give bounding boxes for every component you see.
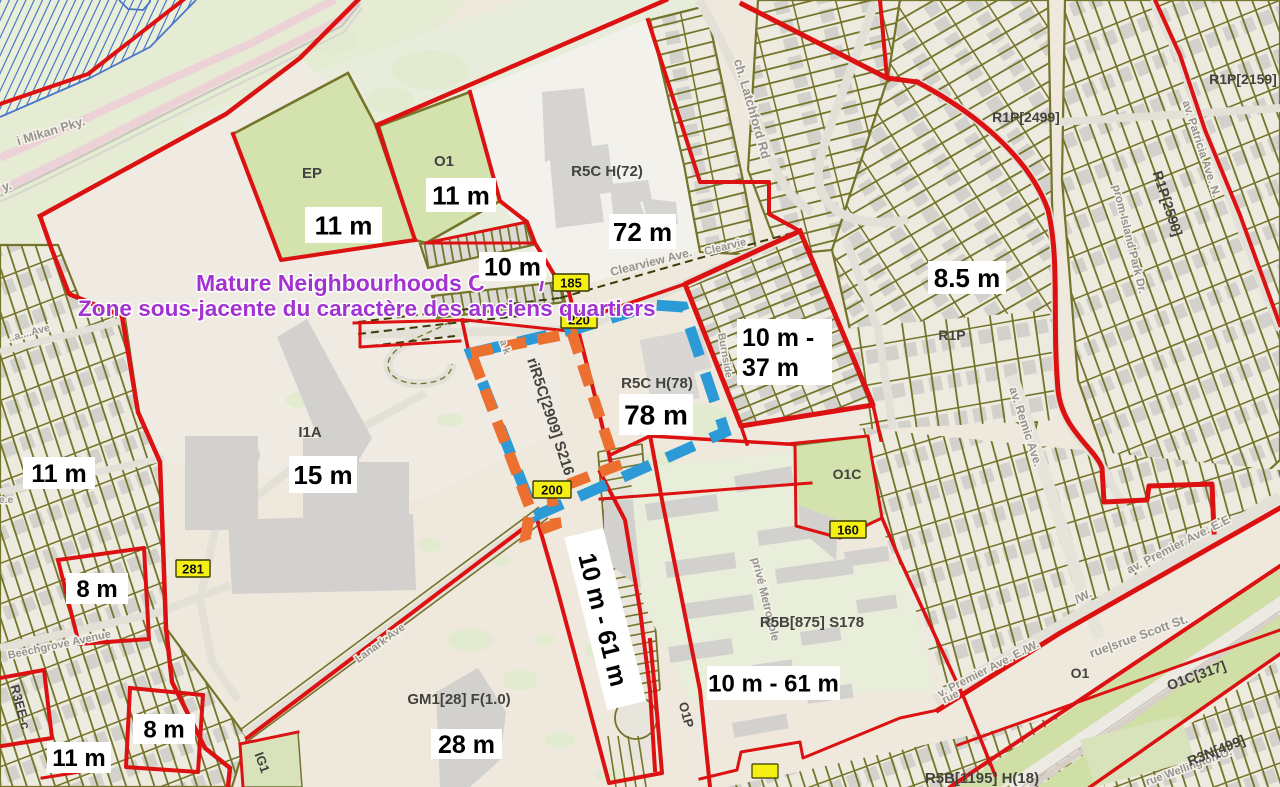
svg-text:R5C H(72): R5C H(72): [571, 163, 643, 180]
svg-text:I1A: I1A: [298, 424, 322, 441]
svg-text:Mature Neighbourhoods C: Mature Neighbourhoods C: [196, 270, 485, 296]
svg-text:8 m: 8 m: [76, 576, 117, 603]
svg-text:O1: O1: [1071, 665, 1090, 681]
svg-text:28 m: 28 m: [438, 731, 495, 759]
svg-text:11 m: 11 m: [315, 210, 373, 240]
svg-text:11 m: 11 m: [31, 460, 87, 488]
svg-text:R1P[2159]: R1P[2159]: [1209, 71, 1277, 87]
svg-text:15 m: 15 m: [293, 460, 352, 490]
svg-text:O1C: O1C: [833, 466, 862, 482]
svg-text:10 m - 61 m: 10 m - 61 m: [708, 671, 839, 698]
svg-text:R5B[1195] H(18): R5B[1195] H(18): [925, 770, 1039, 787]
svg-text:e.e: e.e: [0, 494, 13, 506]
svg-text:O1: O1: [434, 153, 454, 170]
svg-text:8 m: 8 m: [143, 717, 184, 744]
svg-text:11 m: 11 m: [432, 180, 490, 210]
svg-text:8.5 m: 8.5 m: [934, 263, 1001, 293]
svg-text:37 m: 37 m: [742, 354, 799, 382]
svg-text:EP: EP: [302, 165, 322, 182]
svg-text:10 m -: 10 m -: [742, 324, 814, 352]
svg-text:200: 200: [541, 483, 563, 498]
svg-text:11 m: 11 m: [52, 745, 105, 772]
svg-text:160: 160: [837, 523, 859, 538]
svg-text:R1P: R1P: [938, 327, 965, 343]
svg-text:72 m: 72 m: [613, 217, 672, 247]
svg-text:R5B[875] S178: R5B[875] S178: [760, 614, 864, 631]
svg-text:78 m: 78 m: [624, 400, 688, 431]
svg-text:10 m: 10 m: [484, 254, 541, 282]
svg-text:281: 281: [182, 562, 204, 577]
svg-text:Zone sous-jacente du caractère: Zone sous-jacente du caractère des ancie…: [78, 296, 656, 321]
svg-text:R1P[2499]: R1P[2499]: [992, 109, 1060, 125]
svg-text:185: 185: [560, 276, 582, 291]
svg-text:GM1[28] F(1.0): GM1[28] F(1.0): [407, 691, 510, 708]
svg-text:R5C H(78): R5C H(78): [621, 375, 693, 392]
